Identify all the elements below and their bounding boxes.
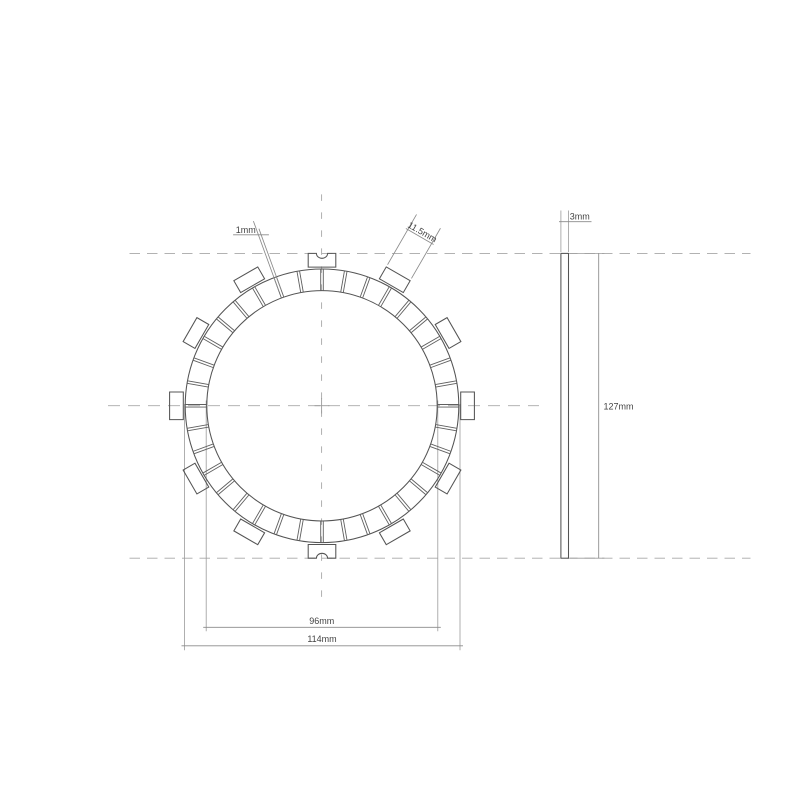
svg-text:96mm: 96mm — [309, 616, 334, 626]
svg-text:114mm: 114mm — [307, 634, 336, 644]
svg-text:3mm: 3mm — [570, 212, 590, 222]
svg-text:127mm: 127mm — [604, 401, 634, 411]
svg-text:1mm: 1mm — [236, 225, 256, 235]
